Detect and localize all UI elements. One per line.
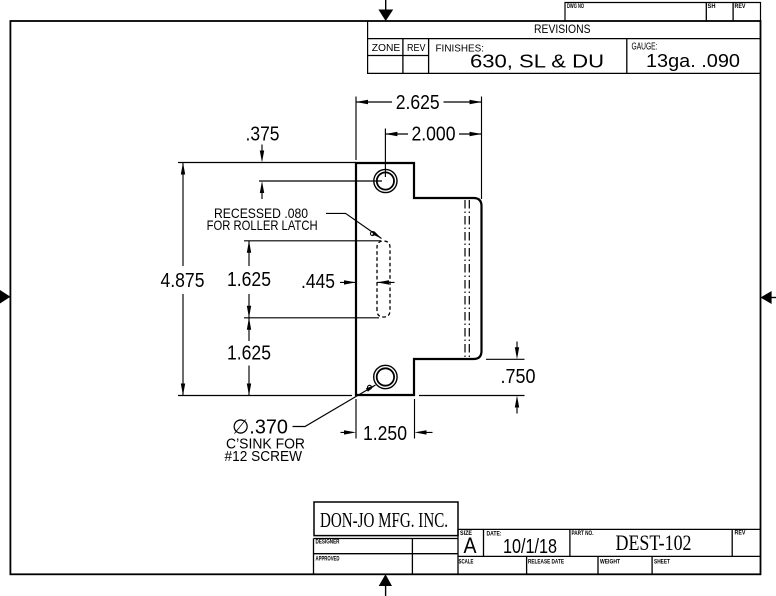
svg-text:∅.370: ∅.370 bbox=[232, 417, 288, 439]
svg-text:PART NO.: PART NO. bbox=[572, 531, 594, 537]
svg-text:APPROVED: APPROVED bbox=[316, 557, 340, 563]
svg-text:REVISIONS: REVISIONS bbox=[534, 24, 591, 36]
svg-text:REV: REV bbox=[735, 4, 746, 10]
svg-text:.375: .375 bbox=[246, 124, 280, 146]
svg-text:FOR ROLLER LATCH: FOR ROLLER LATCH bbox=[207, 218, 318, 233]
svg-text:630, SL & DU: 630, SL & DU bbox=[470, 50, 604, 71]
svg-text:REV: REV bbox=[735, 531, 746, 537]
svg-text:RELEASE DATE: RELEASE DATE bbox=[528, 560, 564, 566]
svg-text:1.250: 1.250 bbox=[363, 423, 407, 445]
svg-text:WEIGHT: WEIGHT bbox=[600, 560, 620, 566]
svg-text:10/1/18: 10/1/18 bbox=[503, 536, 557, 558]
svg-text:SHEET: SHEET bbox=[654, 560, 670, 566]
svg-text:DESIGNER: DESIGNER bbox=[316, 540, 341, 546]
svg-text:DWG NO: DWG NO bbox=[567, 4, 584, 10]
svg-text:.445: .445 bbox=[301, 271, 335, 293]
svg-text:DEST-102: DEST-102 bbox=[616, 530, 692, 555]
svg-text:REV: REV bbox=[407, 42, 426, 54]
svg-text:.750: .750 bbox=[501, 366, 536, 388]
svg-text:A: A bbox=[464, 533, 477, 558]
svg-text:1.625: 1.625 bbox=[227, 269, 271, 291]
svg-text:SH: SH bbox=[708, 4, 716, 10]
svg-text:1.625: 1.625 bbox=[227, 343, 271, 365]
svg-text:4.875: 4.875 bbox=[161, 270, 205, 292]
svg-text:13ga. .090: 13ga. .090 bbox=[646, 50, 740, 71]
svg-text:ZONE: ZONE bbox=[372, 42, 401, 54]
svg-text:#12 SCREW: #12 SCREW bbox=[225, 449, 303, 465]
svg-text:2.000: 2.000 bbox=[412, 123, 456, 145]
svg-text:SCALE: SCALE bbox=[459, 560, 474, 566]
svg-text:DATE:: DATE: bbox=[487, 532, 502, 538]
svg-text:2.625: 2.625 bbox=[396, 92, 440, 114]
svg-text:DON-JO MFG. INC.: DON-JO MFG. INC. bbox=[320, 508, 448, 532]
